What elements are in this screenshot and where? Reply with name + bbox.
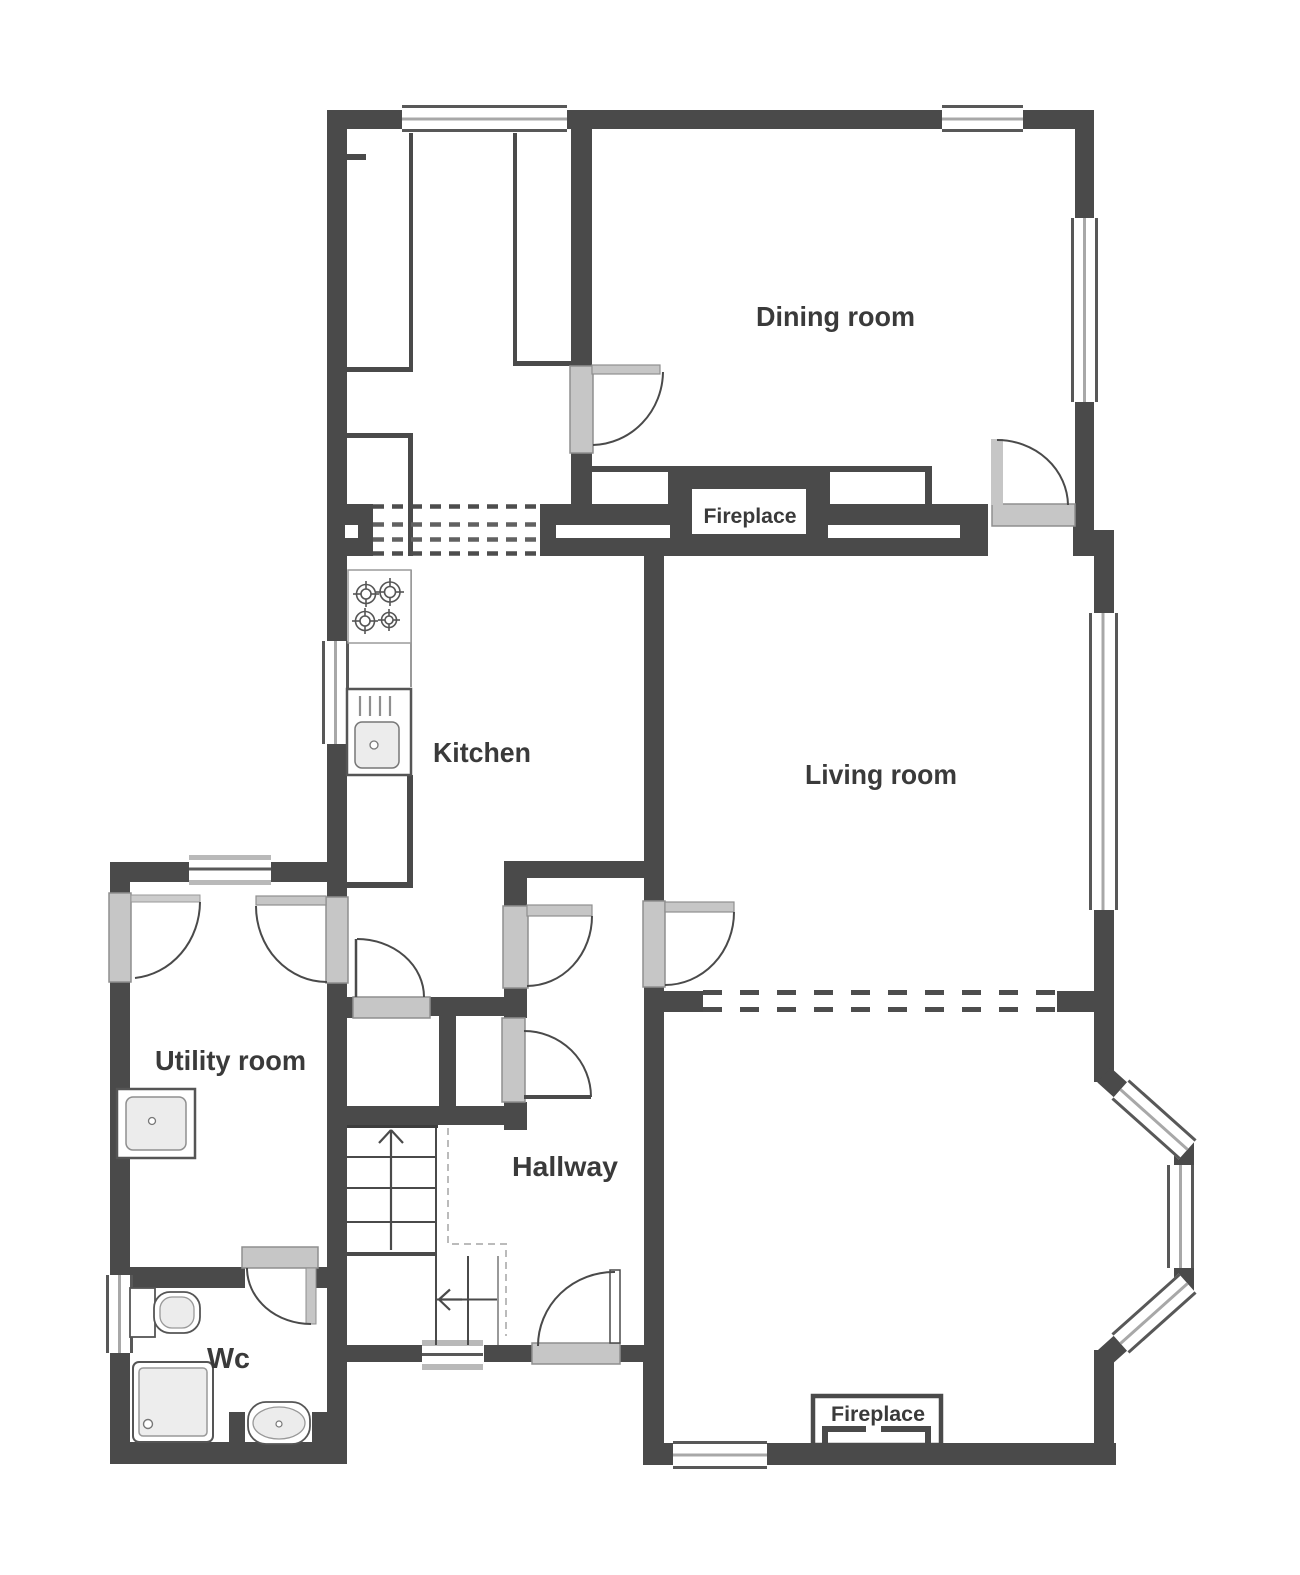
svg-text:Hallway: Hallway xyxy=(512,1151,618,1182)
svg-text:Utility room: Utility room xyxy=(155,1045,306,1076)
svg-text:Wc: Wc xyxy=(207,1343,250,1375)
svg-text:Living room: Living room xyxy=(805,759,957,790)
svg-text:Fireplace: Fireplace xyxy=(831,1403,925,1426)
svg-text:Fireplace: Fireplace xyxy=(704,505,797,528)
svg-text:Dining room: Dining room xyxy=(756,301,915,332)
svg-text:Kitchen: Kitchen xyxy=(433,737,531,768)
